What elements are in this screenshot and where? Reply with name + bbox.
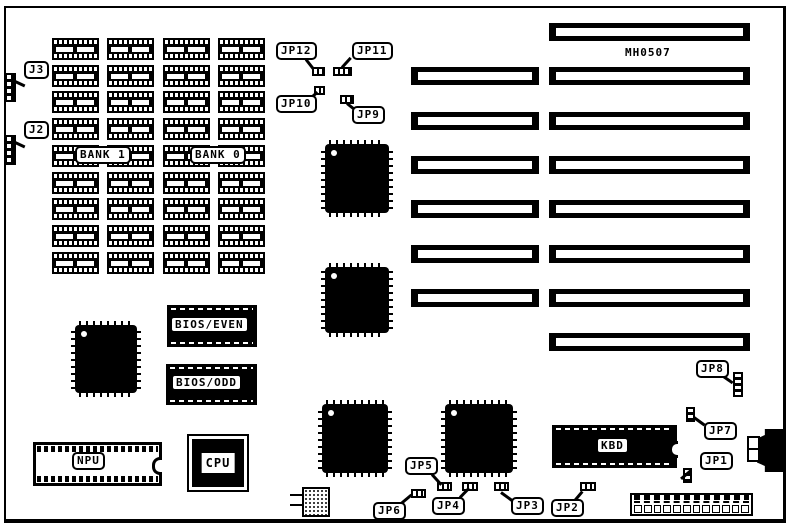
ram-chip: [107, 118, 154, 140]
power-connector-tabs: [634, 495, 749, 500]
kbd-notch: [669, 441, 678, 458]
jp1-callout: JP1: [700, 452, 733, 470]
isa-slot-long: [549, 289, 750, 307]
power-pin: [663, 505, 671, 513]
kbd-label: KBD: [596, 437, 629, 454]
qfp-chip-4: [322, 404, 388, 473]
power-pin: [693, 505, 701, 513]
ram-chip: [107, 38, 154, 60]
isa-slot-short: [411, 156, 539, 174]
ram-chip: [107, 91, 154, 113]
power-connector-divider: [634, 501, 749, 503]
ram-chip: [52, 252, 99, 274]
j3-callout: J3: [24, 61, 49, 79]
bios-even-label: BIOS/EVEN: [170, 316, 249, 333]
ram-chip: [107, 65, 154, 87]
ram-chip: [107, 198, 154, 220]
ram-chip: [218, 38, 265, 60]
j3-pin-header: [6, 73, 16, 102]
kbd-chip: KBD: [552, 425, 677, 468]
qfp-chip-1: [325, 144, 389, 213]
ram-chip: [52, 65, 99, 87]
power-pin: [741, 505, 749, 513]
jp6-jumper: [411, 489, 426, 498]
jp7-callout: JP7: [704, 422, 737, 440]
qfp-chip-2: [325, 267, 389, 333]
crystal-oscillator: [302, 487, 330, 517]
power-pin: [673, 505, 681, 513]
motherboard-diagram: MH0507 BANK 1 BANK 0 J3 J2 JP12 JP11 JP1…: [0, 0, 791, 527]
isa-slot-short: [411, 289, 539, 307]
jp5-callout: JP5: [405, 457, 438, 475]
ram-chip: [218, 225, 265, 247]
isa-slot-long: [549, 200, 750, 218]
j2-pin-header: [6, 135, 16, 165]
ram-chip: [107, 252, 154, 274]
ram-chip: [163, 172, 210, 194]
isa-slot-long: [549, 67, 750, 85]
isa-slot-long: [549, 333, 750, 351]
jp11-callout: JP11: [352, 42, 393, 60]
jp12-callout: JP12: [276, 42, 317, 60]
ram-chip: [218, 118, 265, 140]
isa-slot-short: [411, 112, 539, 130]
jp2-jumper: [580, 482, 596, 491]
isa-slot-long: [549, 112, 750, 130]
ram-chip: [52, 38, 99, 60]
bios-even-chip: BIOS/EVEN: [167, 305, 257, 347]
power-pin: [634, 505, 642, 513]
bios-odd-label: BIOS/ODD: [171, 374, 242, 391]
jp6-callout: JP6: [373, 502, 406, 520]
cpu-label: CPU: [202, 453, 235, 473]
jp3-callout: JP3: [511, 497, 544, 515]
power-pin: [732, 505, 740, 513]
isa-slot-long: [549, 245, 750, 263]
isa-slot-short: [411, 200, 539, 218]
ram-chip: [163, 118, 210, 140]
ram-chip: [52, 225, 99, 247]
ram-chip: [52, 91, 99, 113]
isa-slot-long: [549, 156, 750, 174]
ram-chip: [163, 225, 210, 247]
board-model-text: MH0507: [625, 46, 671, 59]
power-pin: [683, 505, 691, 513]
power-pin: [702, 505, 710, 513]
ram-chip: [163, 38, 210, 60]
ram-chip: [218, 91, 265, 113]
jp3-jumper: [494, 482, 509, 491]
power-connector: [630, 493, 753, 516]
crystal-lead: [290, 494, 302, 496]
ram-chip: [218, 172, 265, 194]
ram-chip: [163, 198, 210, 220]
bank0-label: BANK 0: [190, 146, 246, 164]
ram-chip: [52, 198, 99, 220]
npu-label: NPU: [72, 452, 105, 470]
power-pin: [644, 505, 652, 513]
qfp-chip-3: [75, 325, 137, 393]
isa-slot-short: [411, 245, 539, 263]
jp4-callout: JP4: [432, 497, 465, 515]
din-pin-box: [747, 448, 760, 462]
jp2-callout: JP2: [551, 499, 584, 517]
bank1-label: BANK 1: [75, 146, 131, 164]
ram-chip: [107, 172, 154, 194]
jp10-callout: JP10: [276, 95, 317, 113]
ram-chip: [107, 225, 154, 247]
isa-slot-short: [411, 67, 539, 85]
j2-callout: J2: [24, 121, 49, 139]
ram-chip: [163, 252, 210, 274]
ram-chip: [52, 118, 99, 140]
jp9-callout: JP9: [352, 106, 385, 124]
isa-slot-long: [549, 23, 750, 41]
bios-odd-chip: BIOS/ODD: [166, 364, 257, 405]
npu-notch: [152, 457, 162, 475]
qfp-chip-5: [445, 404, 513, 473]
ram-chip: [163, 65, 210, 87]
jp8-jumper: [733, 372, 743, 397]
ram-chip: [52, 172, 99, 194]
power-pin: [712, 505, 720, 513]
cpu-socket: CPU: [187, 434, 249, 492]
ram-chip: [218, 198, 265, 220]
power-connector-pins: [632, 504, 751, 514]
power-pin: [654, 505, 662, 513]
ram-chip: [218, 252, 265, 274]
jp8-callout: JP8: [696, 360, 729, 378]
crystal-lead: [290, 504, 302, 506]
ram-chip: [163, 91, 210, 113]
ram-chip: [218, 65, 265, 87]
power-pin: [722, 505, 730, 513]
